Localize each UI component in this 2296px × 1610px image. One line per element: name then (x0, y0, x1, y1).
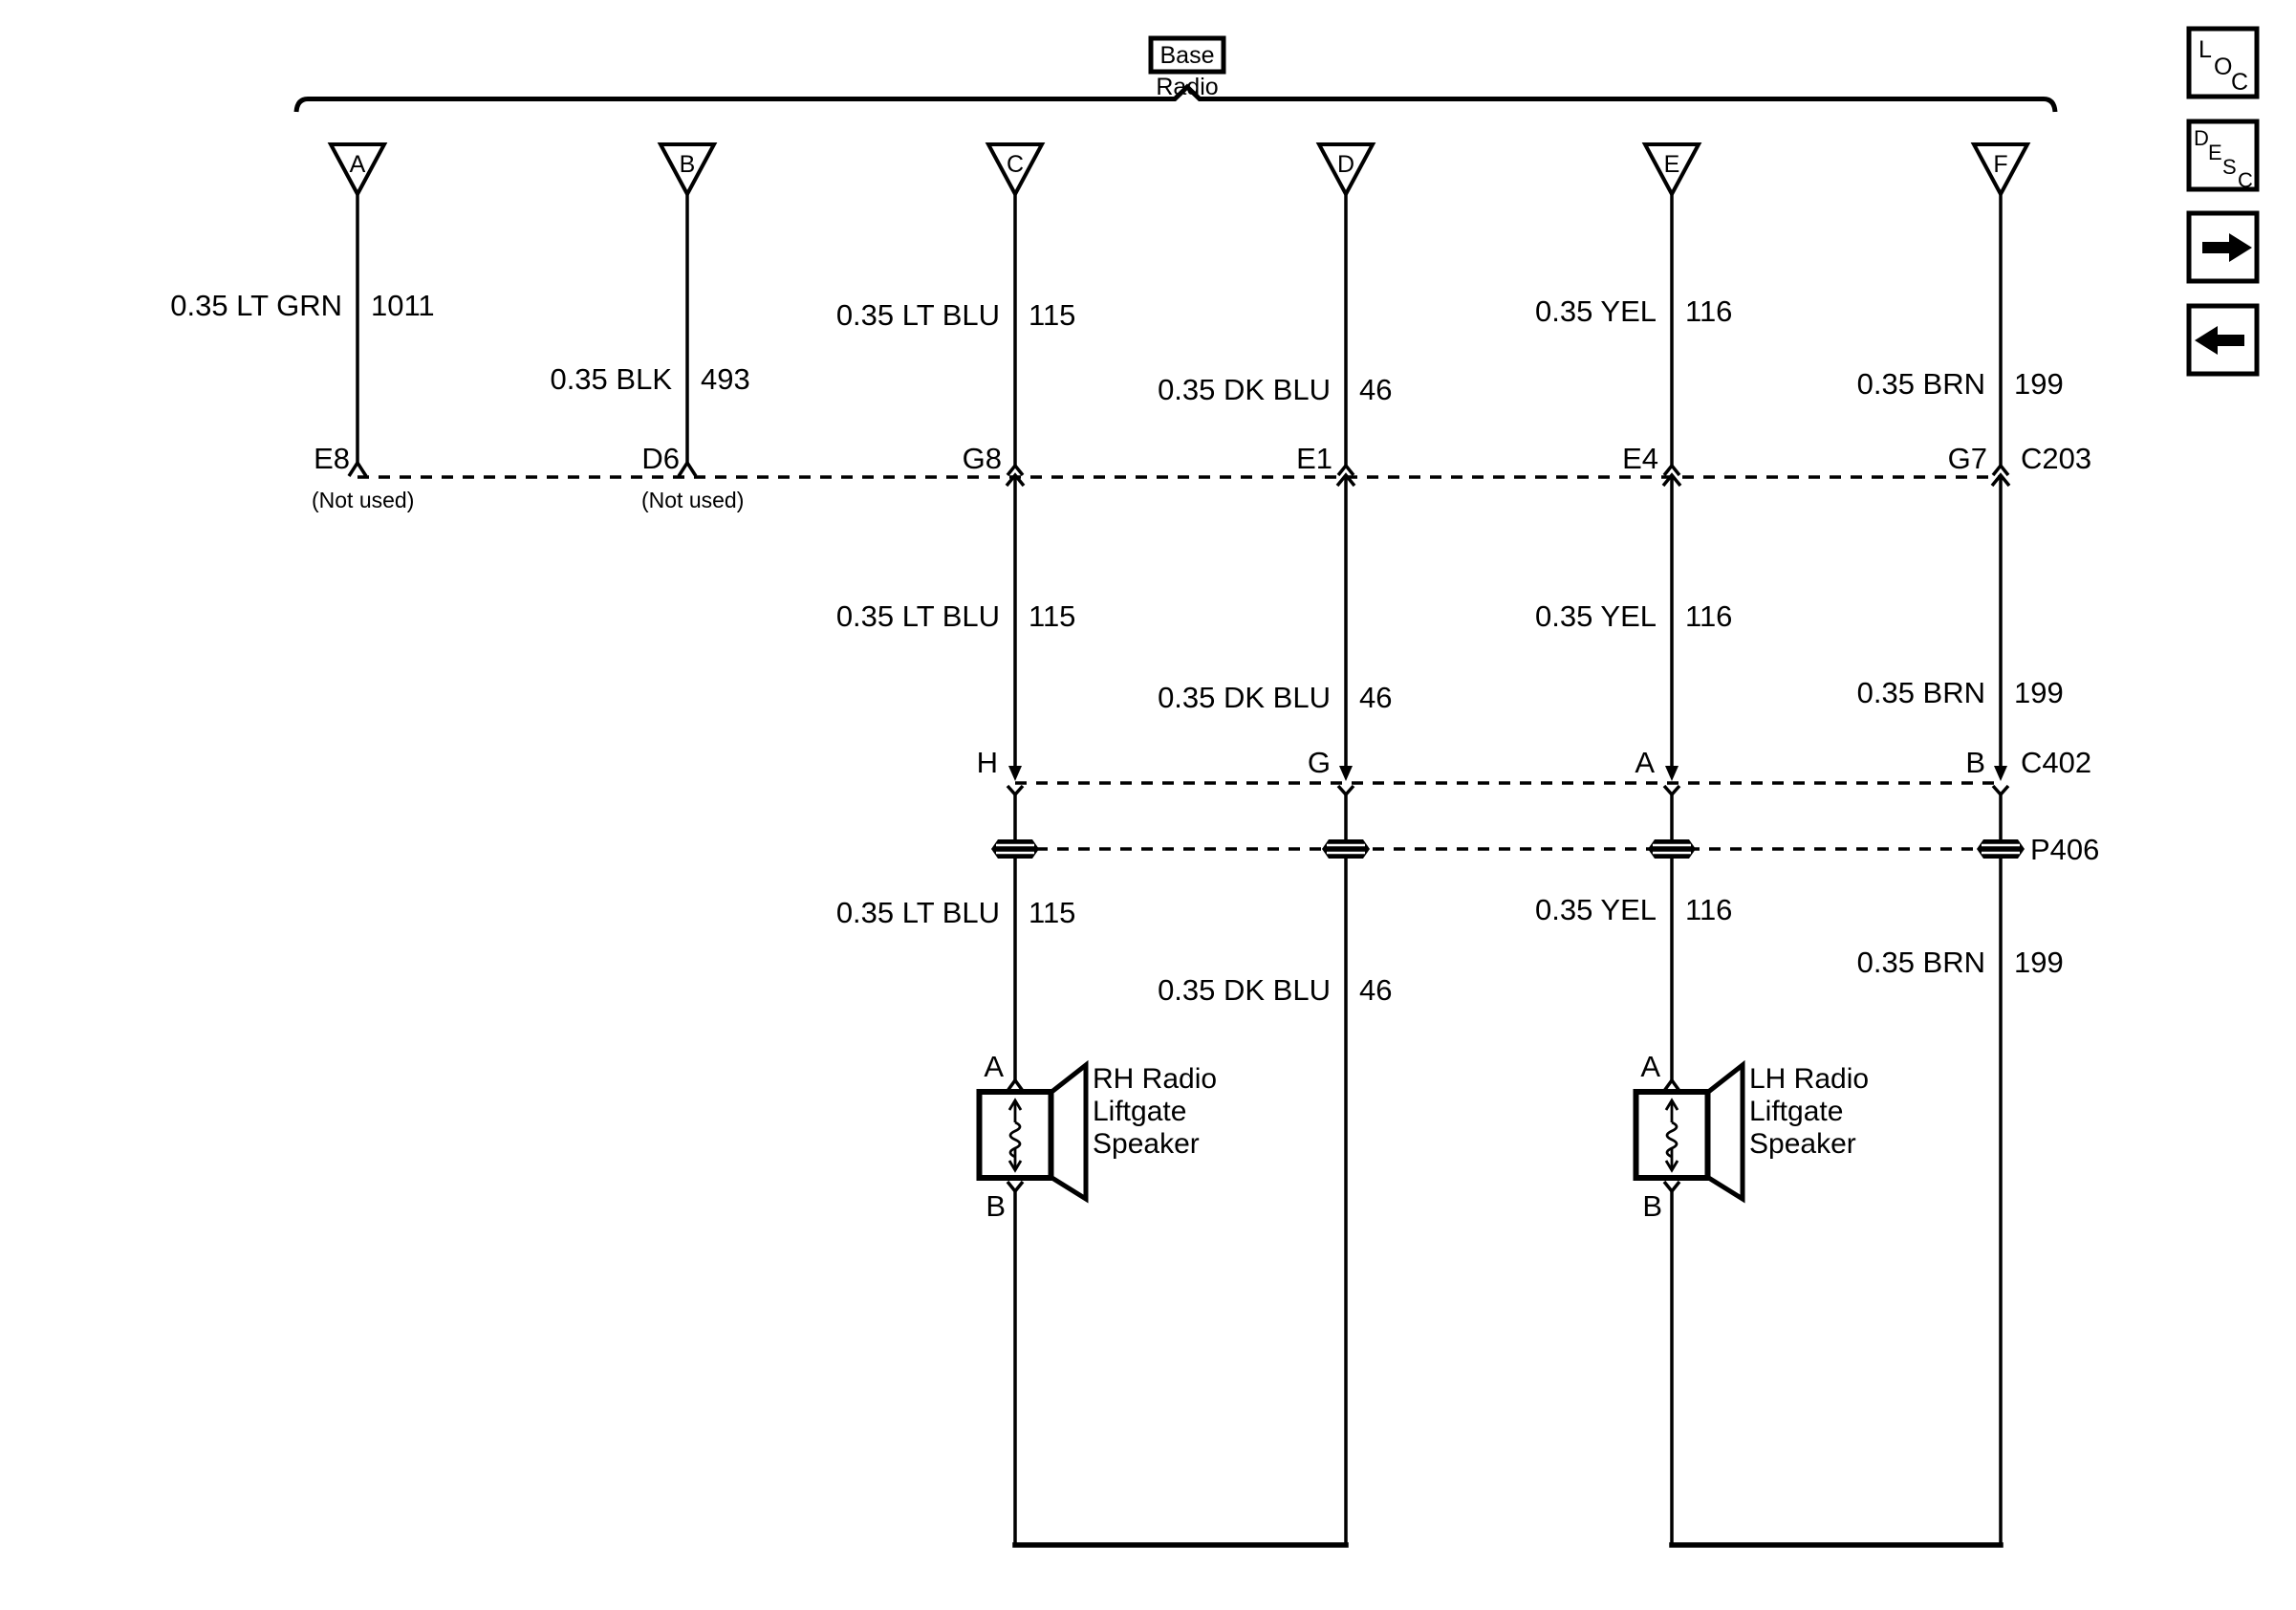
connector-c203-label: C203 (2021, 442, 2091, 475)
wire-f-pin-c402: B (1965, 746, 1985, 779)
wire-f-color-1: 0.35 BRN (1857, 367, 1985, 401)
wire-e-circuit-1: 116 (1685, 294, 1732, 328)
terminal-end-icon (679, 463, 696, 476)
wire-b: B 0.35 BLK 493 D6 (Not used) (550, 144, 749, 512)
wire-c-color-2: 0.35 LT BLU (836, 599, 1000, 633)
connector-c402-label: C402 (2021, 746, 2091, 779)
speaker-name-line3: Speaker (1749, 1128, 1856, 1160)
pass-through-down-icon (1664, 786, 1679, 794)
branch-pin-b-label: B (680, 151, 696, 178)
desc-letter-d: D (2194, 126, 2209, 150)
wire-f-circuit-3: 199 (2014, 946, 2064, 979)
wire-c-pin-c402: H (977, 746, 998, 779)
wire-f-circuit-2: 199 (2014, 676, 2064, 709)
speaker-pin-a-label: A (1640, 1050, 1660, 1083)
wire-d-circuit-2: 46 (1359, 681, 1392, 714)
loc-letter-l: L (2199, 36, 2212, 63)
wire-c-circuit-3: 115 (1029, 896, 1075, 929)
speaker-name-line2: Liftgate (1749, 1096, 1843, 1127)
splice-p406-icon (991, 839, 1039, 859)
speaker-horn-icon (1051, 1065, 1086, 1199)
arrow-down-icon (1994, 766, 2007, 781)
wire-d-color-2: 0.35 DK BLU (1158, 681, 1331, 714)
wire-a-note: (Not used) (312, 488, 414, 512)
wiring-diagram-page: Base Radio C203 C402 P406 A 0.35 LT GRN … (0, 0, 2296, 1610)
arrow-down-icon (1008, 766, 1022, 781)
speaker-pin-b-label: B (1642, 1189, 1662, 1223)
terminal-end-icon (349, 463, 366, 476)
branch-pin-a-label: A (350, 151, 366, 178)
branch-pin-f-label: F (1993, 151, 2007, 178)
wire-e-pin-c203: E4 (1622, 442, 1658, 475)
forward-button[interactable] (2189, 213, 2257, 281)
splice-p406-icon (1322, 839, 1370, 859)
loc-button[interactable]: L O C (2189, 29, 2257, 97)
splice-p406-icon (1977, 839, 2025, 859)
wire-e-circuit-2: 116 (1685, 599, 1732, 633)
component-header: Base Radio (296, 38, 2055, 112)
wire-d-pin-c203: E1 (1296, 442, 1332, 475)
branch-pin-c-label: C (1007, 151, 1024, 178)
wire-d-color-3: 0.35 DK BLU (1158, 973, 1331, 1007)
arrow-down-icon (1339, 766, 1353, 781)
wire-c-pin-c203: G8 (963, 442, 1002, 475)
terminal-out-icon (1664, 1182, 1679, 1191)
speaker-name-line3: Speaker (1093, 1128, 1200, 1160)
loc-letter-c: C (2231, 69, 2248, 96)
speaker-pin-b-label: B (986, 1189, 1006, 1223)
wire-a-circuit: 1011 (371, 289, 435, 322)
wire-d: D 0.35 DK BLU 46 E1 G 0.35 DK BLU 46 0.3… (1158, 144, 1392, 1547)
rh-radio-liftgate-speaker: A B RH Radio Liftgate Speaker (980, 1050, 1218, 1547)
branch-pin-e-label: E (1664, 151, 1680, 178)
speaker-name-line1: RH Radio (1093, 1063, 1217, 1095)
wire-f-color-3: 0.35 BRN (1857, 946, 1985, 979)
desc-letter-s: S (2222, 155, 2237, 179)
wire-a-color: 0.35 LT GRN (170, 289, 342, 322)
wire-e: E 0.35 YEL 116 E4 A 0.35 YEL 116 0.35 YE… (1535, 144, 1732, 1080)
desc-letter-e: E (2208, 141, 2222, 164)
variant-label: Base (1160, 42, 1215, 69)
terminal-out-icon (1007, 1182, 1023, 1191)
branch-pin-d-label: D (1337, 151, 1354, 178)
wire-e-color-3: 0.35 YEL (1535, 893, 1657, 926)
wire-c: C 0.35 LT BLU 115 G8 H 0.35 LT BLU 115 0… (836, 144, 1076, 1080)
wire-c-color-3: 0.35 LT BLU (836, 896, 1000, 929)
pass-through-down-icon (1338, 786, 1354, 794)
speaker-horn-icon (1707, 1065, 1743, 1199)
wire-f-pin-c203: G7 (1948, 442, 1987, 475)
wire-b-color: 0.35 BLK (550, 362, 672, 396)
wire-d-circuit-3: 46 (1359, 973, 1392, 1007)
lh-radio-liftgate-speaker: A B LH Radio Liftgate Speaker (1636, 1050, 1870, 1547)
wire-f-color-2: 0.35 BRN (1857, 676, 1985, 709)
wire-c-circuit-1: 115 (1029, 298, 1075, 332)
speaker-name-line1: LH Radio (1749, 1063, 1869, 1095)
wire-d-color-1: 0.35 DK BLU (1158, 373, 1331, 406)
arrow-down-icon (1665, 766, 1679, 781)
wire-a-pin: E8 (314, 442, 350, 475)
speaker-pin-a-label: A (984, 1050, 1004, 1083)
wire-a: A 0.35 LT GRN 1011 E8 (Not used) (170, 144, 434, 512)
speaker-name-line2: Liftgate (1093, 1096, 1186, 1127)
connector-p406-label: P406 (2030, 833, 2099, 866)
pass-through-down-icon (1007, 786, 1023, 794)
wire-d-pin-c402: G (1308, 746, 1331, 779)
wire-e-pin-c402: A (1635, 746, 1655, 779)
loc-letter-o: O (2214, 54, 2232, 80)
wire-d-circuit-1: 46 (1359, 373, 1392, 406)
pass-through-down-icon (1993, 786, 2008, 794)
wire-f-circuit-1: 199 (2014, 367, 2064, 401)
desc-letter-c: C (2238, 168, 2253, 192)
wire-b-circuit: 493 (701, 362, 750, 396)
wire-e-color-2: 0.35 YEL (1535, 599, 1657, 633)
wire-c-color-1: 0.35 LT BLU (836, 298, 1000, 332)
wire-c-circuit-2: 115 (1029, 599, 1075, 633)
wiring-diagram-canvas: Base Radio C203 C402 P406 A 0.35 LT GRN … (0, 0, 2296, 1610)
wire-e-color-1: 0.35 YEL (1535, 294, 1657, 328)
splice-p406-icon (1648, 839, 1696, 859)
wire-b-pin: D6 (641, 442, 680, 475)
wire-e-circuit-3: 116 (1685, 893, 1732, 926)
desc-button[interactable]: D E S C (2189, 121, 2257, 192)
back-button[interactable] (2189, 306, 2257, 374)
wire-b-note: (Not used) (641, 488, 744, 512)
